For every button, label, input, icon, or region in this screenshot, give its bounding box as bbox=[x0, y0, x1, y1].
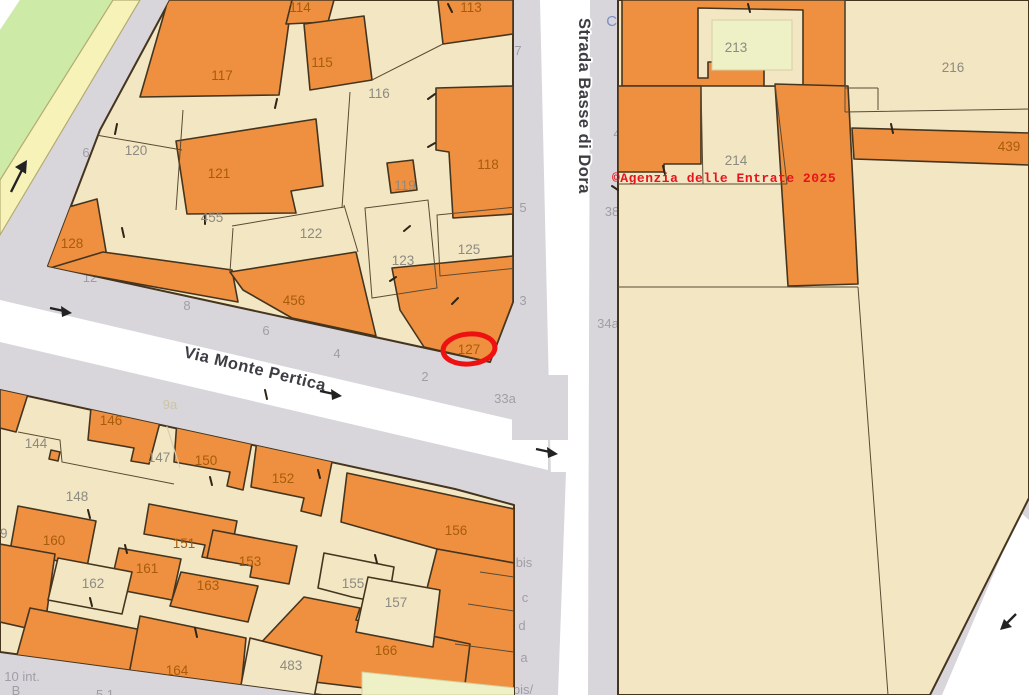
parcel-label-163: 163 bbox=[197, 578, 220, 593]
cadastral-map-viewport: 75343834aCoubiscdabis/2733a246812610 int… bbox=[0, 0, 1029, 695]
street-number-3: 3 bbox=[519, 293, 526, 308]
street-number-B: B bbox=[12, 683, 21, 695]
parcel-label-455: 455 bbox=[201, 210, 224, 225]
street-number-4b: 4 bbox=[333, 346, 340, 361]
parcel-label-114: 114 bbox=[289, 0, 311, 15]
parcel-label-483: 483 bbox=[280, 658, 303, 673]
parcel-label-213: 213 bbox=[725, 40, 748, 55]
address-suffix-a: a bbox=[520, 650, 528, 665]
parcel-label-148: 148 bbox=[66, 489, 89, 504]
courtyard-label-9a: 9a bbox=[163, 397, 178, 412]
parcel-label-116: 116 bbox=[368, 86, 390, 101]
parcel-label-115: 115 bbox=[311, 55, 333, 70]
parcel-label-166: 166 bbox=[375, 643, 398, 658]
parcel-label-161: 161 bbox=[136, 561, 159, 576]
parcel-label-216: 216 bbox=[942, 60, 965, 75]
cadastral-map: 75343834aCoubiscdabis/2733a246812610 int… bbox=[0, 0, 1029, 695]
street-number-partial: 5 1 bbox=[96, 687, 114, 695]
address-suffix-d: d bbox=[518, 618, 525, 633]
parcel-label-156: 156 bbox=[445, 523, 468, 538]
street-number-34a: 34a bbox=[597, 316, 619, 331]
street-name-strada-basse-di-dora: Strada Basse di Dora bbox=[575, 18, 593, 194]
parcel-label-214: 214 bbox=[725, 153, 748, 168]
street-number-2: 2 bbox=[421, 369, 428, 384]
parcel-label-118: 118 bbox=[477, 157, 499, 172]
street-number-7: 7 bbox=[514, 43, 521, 58]
street-number-33a: 33a bbox=[494, 391, 516, 406]
parcel-label-113: 113 bbox=[460, 0, 482, 15]
parcel-label-125: 125 bbox=[458, 242, 481, 257]
parcel-label-162: 162 bbox=[82, 576, 105, 591]
parcel-label-117: 117 bbox=[211, 68, 233, 83]
street-number-6: 6 bbox=[262, 323, 269, 338]
parcel-label-69: 69 bbox=[0, 526, 8, 541]
street-number-10int: 10 int. bbox=[4, 669, 39, 684]
parcel-label-121: 121 bbox=[208, 166, 231, 181]
address-suffix-bis: bis bbox=[516, 555, 533, 570]
parcel-label-147: 147 bbox=[148, 450, 171, 465]
block-right bbox=[618, 0, 1029, 695]
street-number-5: 5 bbox=[519, 200, 526, 215]
parcel-label-119: 119 bbox=[394, 178, 416, 193]
traffic-island bbox=[512, 375, 568, 440]
parcel-label-155: 155 bbox=[342, 576, 365, 591]
parcel-label-122: 122 bbox=[300, 226, 323, 241]
parcel-label-120: 120 bbox=[125, 143, 148, 158]
address-suffix-bis2: bis/ bbox=[513, 682, 534, 695]
copyright-text: ©Agenzia delle Entrate 2025 bbox=[612, 171, 836, 186]
parcel-label-151: 151 bbox=[173, 536, 196, 551]
parcel-label-160: 160 bbox=[43, 533, 66, 548]
street-number-8: 8 bbox=[183, 298, 190, 313]
parcel-label-157: 157 bbox=[385, 595, 408, 610]
parcel-115[interactable] bbox=[304, 16, 372, 90]
address-suffix-c: c bbox=[522, 590, 529, 605]
parcel-label-153: 153 bbox=[239, 554, 262, 569]
parcel-label-152: 152 bbox=[272, 471, 295, 486]
parcel-label-146: 146 bbox=[100, 413, 123, 428]
parcel-label-123: 123 bbox=[392, 253, 415, 268]
parcel-label-439: 439 bbox=[998, 139, 1021, 154]
parcel-label-150: 150 bbox=[195, 453, 218, 468]
parcel-label-164: 164 bbox=[166, 663, 189, 678]
building-footprint bbox=[618, 86, 701, 172]
parcel-label-144: 144 bbox=[25, 436, 48, 451]
parcel-label-127: 127 bbox=[458, 342, 481, 357]
parcel-label-456: 456 bbox=[283, 293, 306, 308]
building-footprint bbox=[49, 450, 60, 461]
parcel-label-128: 128 bbox=[61, 236, 84, 251]
